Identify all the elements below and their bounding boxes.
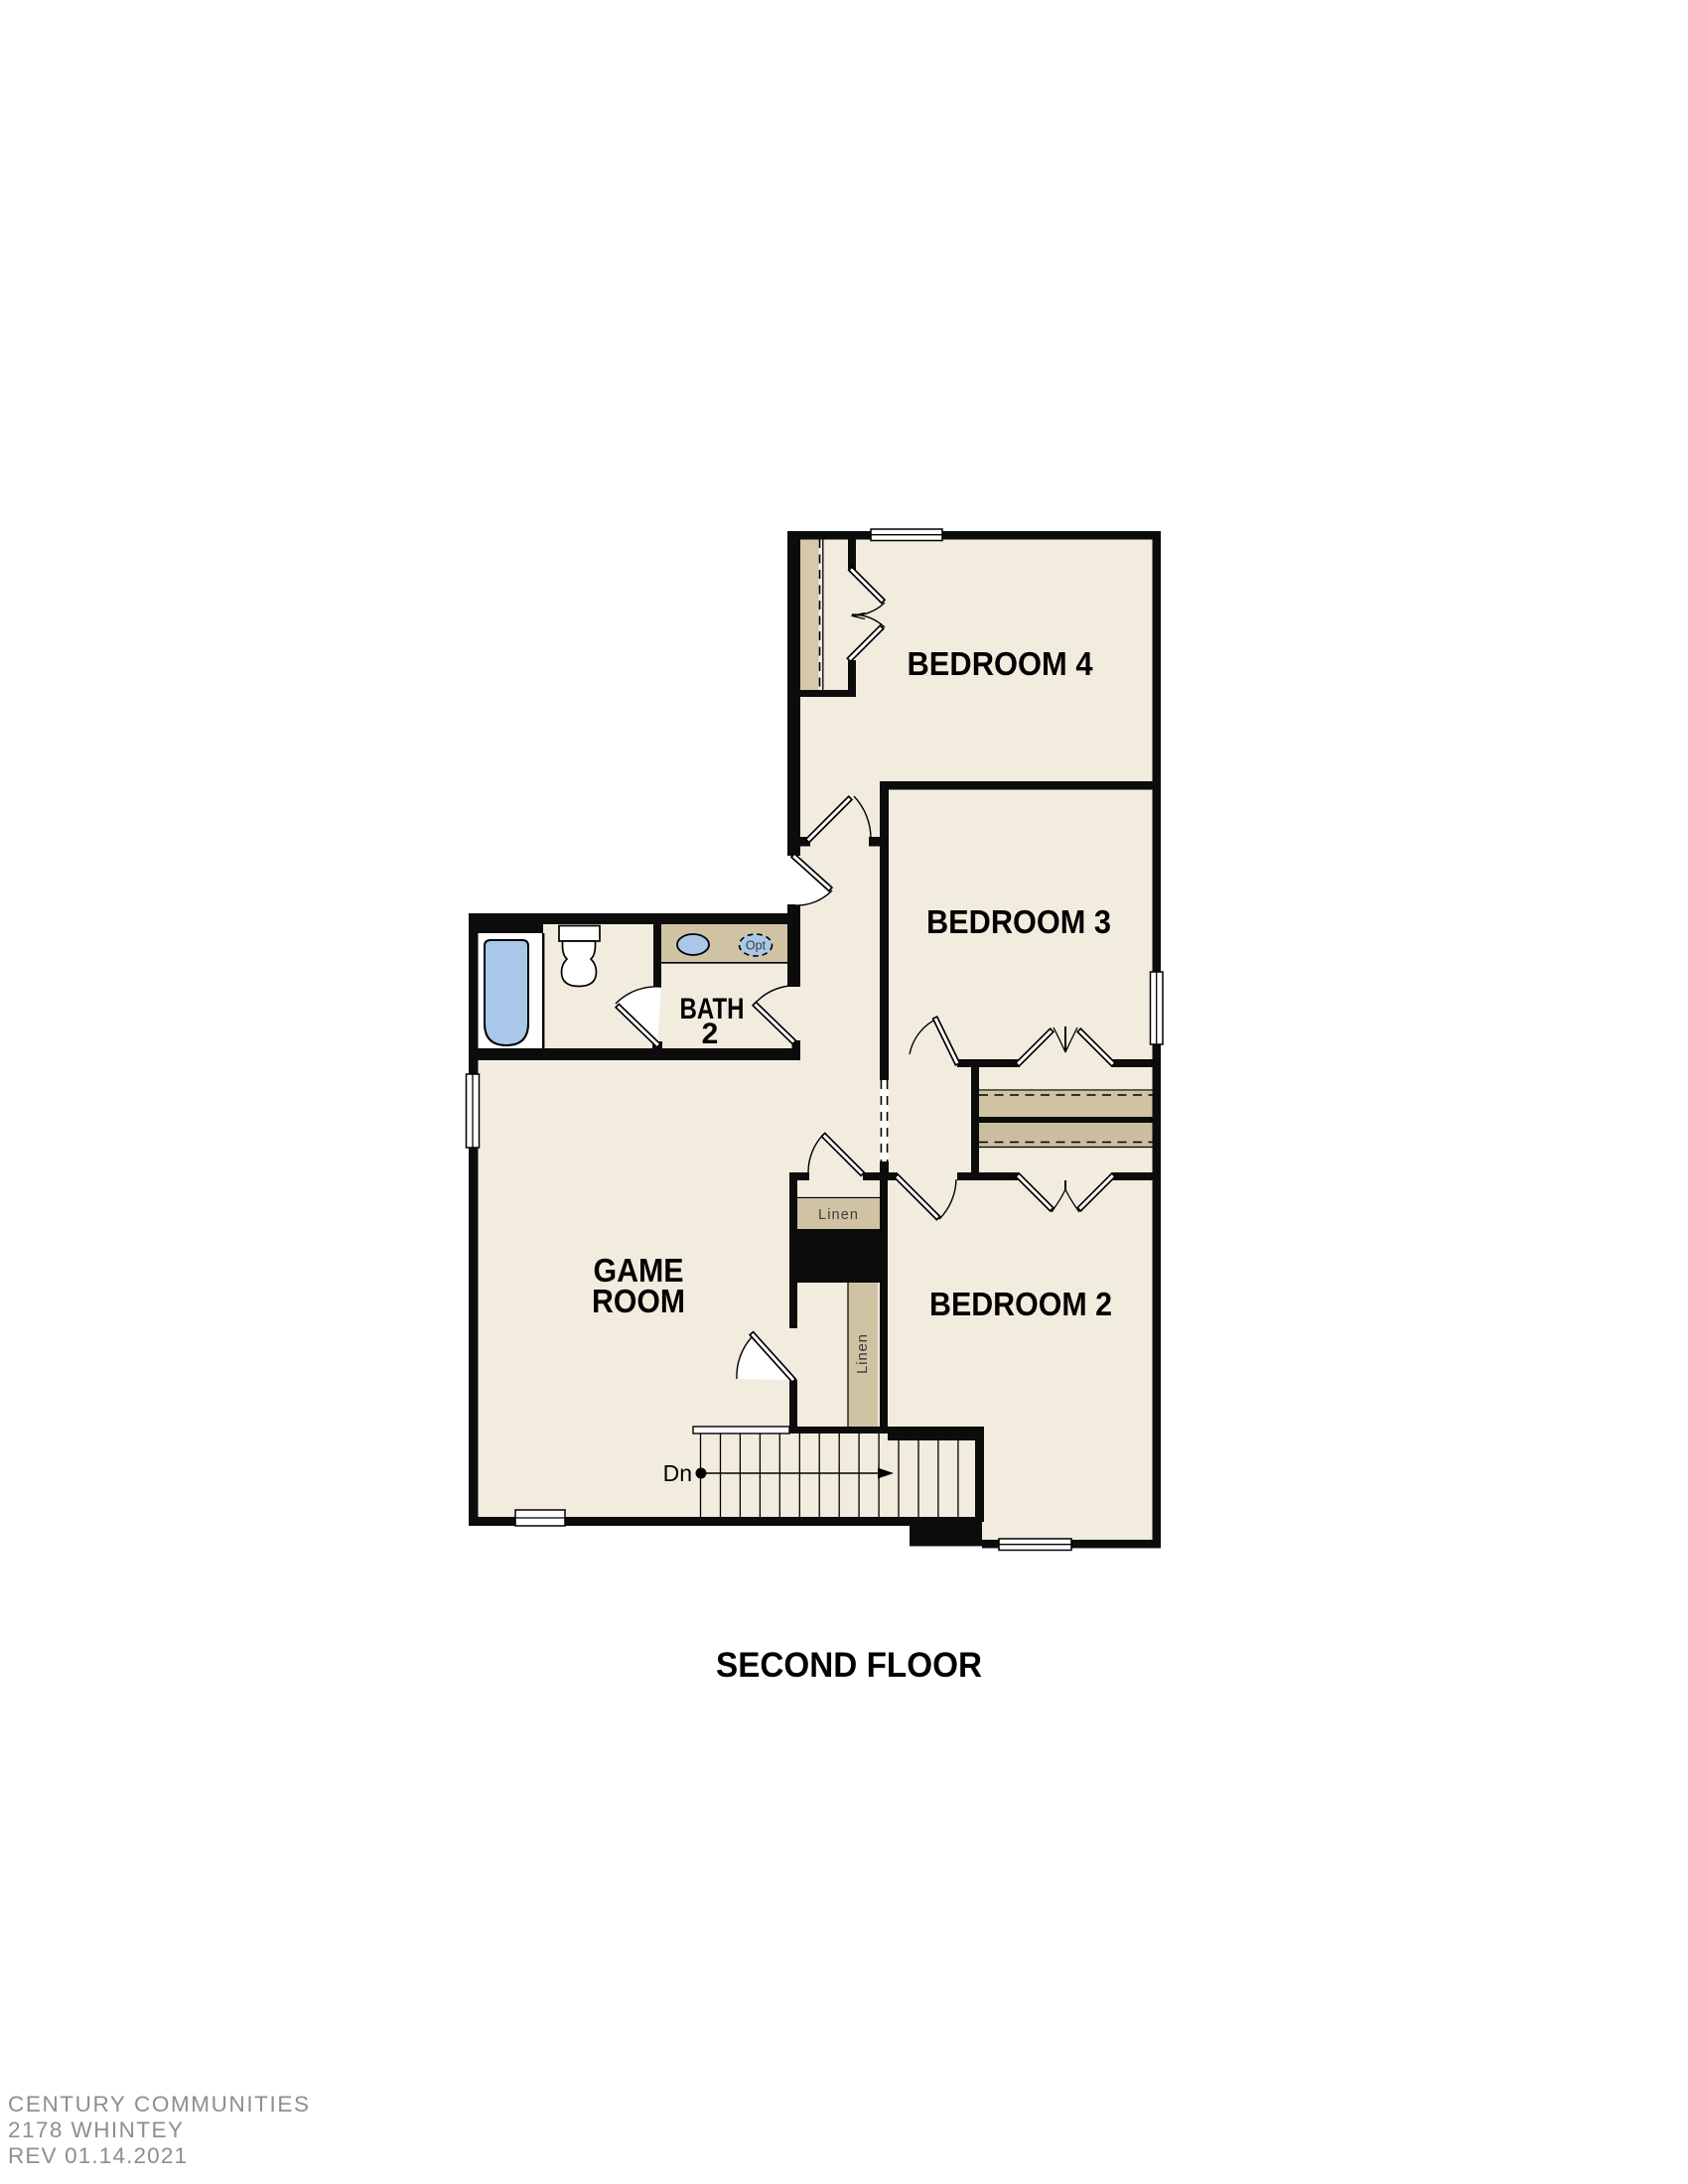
svg-text:SECOND FLOOR: SECOND FLOOR bbox=[716, 1646, 982, 1685]
svg-text:REV 01.14.2021: REV 01.14.2021 bbox=[8, 2143, 187, 2168]
svg-text:BEDROOM 3: BEDROOM 3 bbox=[926, 903, 1111, 940]
svg-text:2178 WHINTEY: 2178 WHINTEY bbox=[8, 2117, 183, 2142]
svg-text:ROOM: ROOM bbox=[592, 1283, 685, 1319]
svg-text:Linen: Linen bbox=[818, 1207, 858, 1223]
svg-text:Linen: Linen bbox=[854, 1334, 871, 1374]
svg-text:BEDROOM 2: BEDROOM 2 bbox=[929, 1286, 1112, 1322]
svg-text:CENTURY COMMUNITIES: CENTURY COMMUNITIES bbox=[8, 2092, 309, 2116]
svg-text:Dn: Dn bbox=[663, 1460, 692, 1486]
svg-text:BEDROOM 4: BEDROOM 4 bbox=[908, 645, 1094, 682]
svg-text:Opt: Opt bbox=[746, 939, 767, 953]
svg-text:2: 2 bbox=[702, 1018, 719, 1050]
